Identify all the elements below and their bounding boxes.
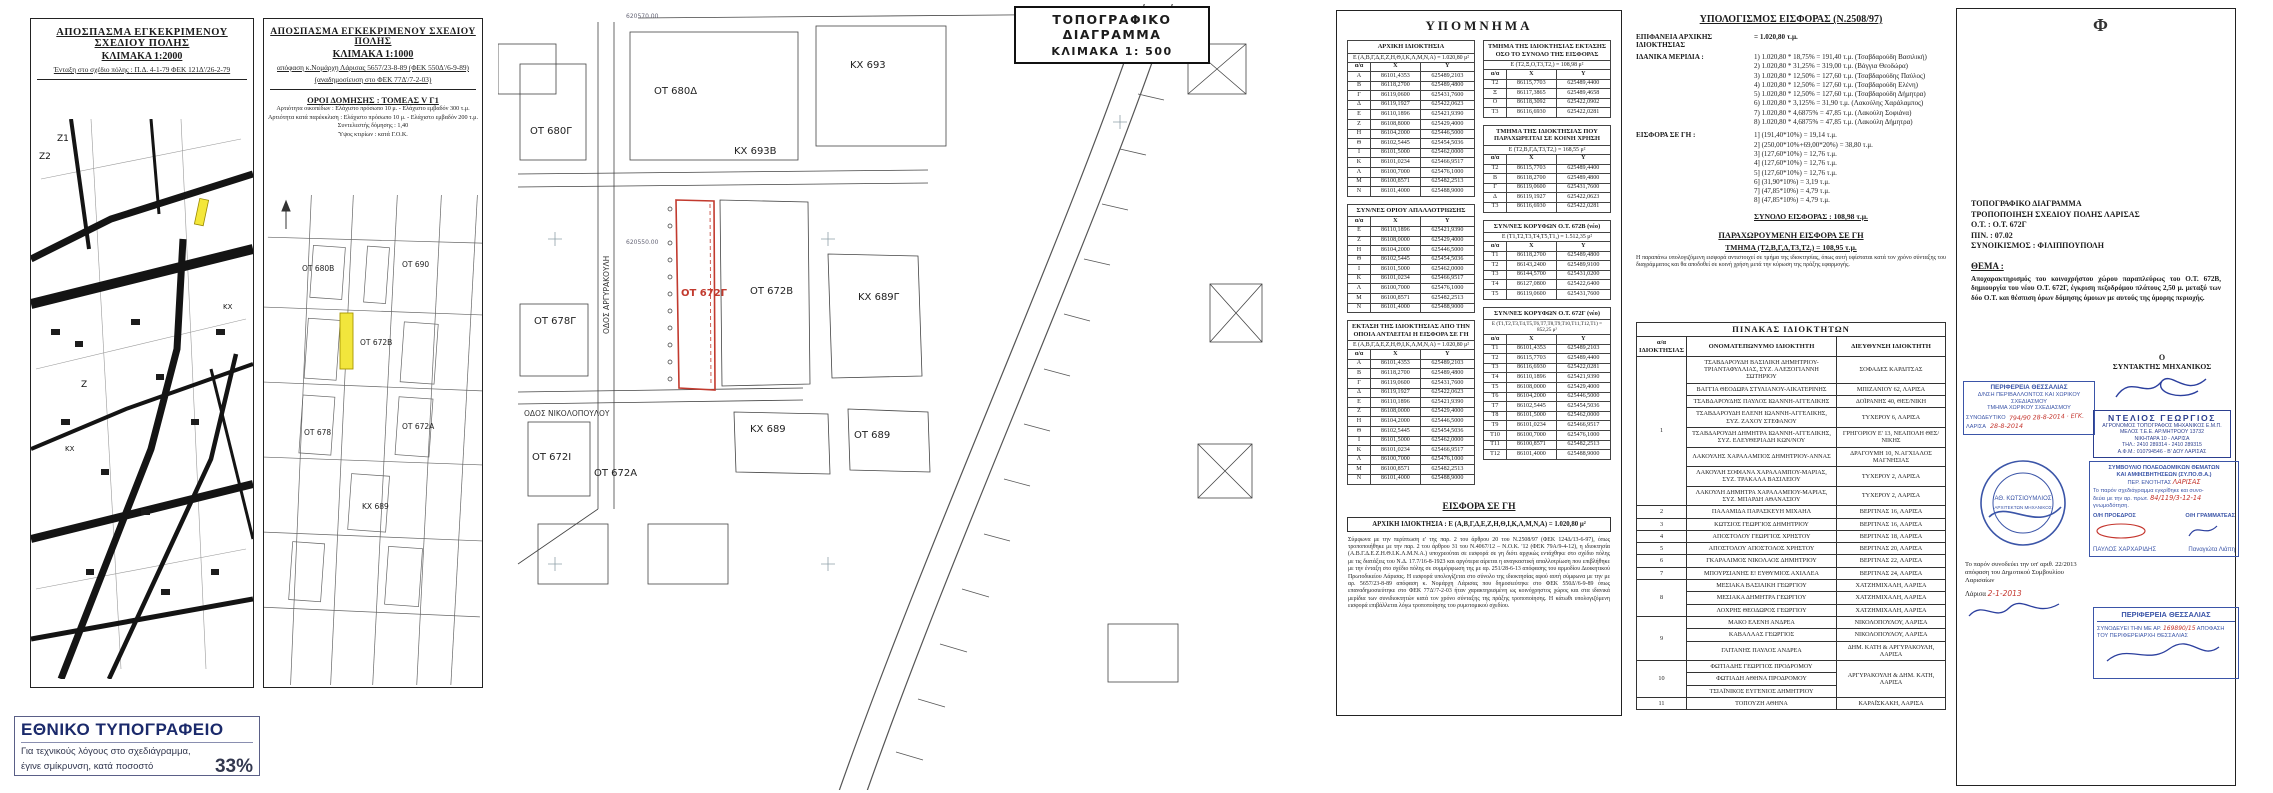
north-arrow-icon — [282, 201, 290, 229]
coord-cell: Θ — [1348, 255, 1371, 265]
coord-cell: 86110,1896 — [1507, 373, 1557, 383]
owner-address: ΣΟΦΑΔΕΣ ΚΑΡΔΙΤΣΑΣ — [1837, 356, 1946, 383]
coord-cell: Ν — [1348, 187, 1371, 197]
coord-cell: 86100,8571 — [1371, 465, 1421, 475]
coord-cell: 86101,4000 — [1371, 303, 1421, 313]
coord-cell: Κ — [1348, 274, 1371, 284]
coord-cell: 86102,5445 — [1371, 255, 1421, 265]
table-row: Κ86101,0234625466,9517 — [1348, 158, 1475, 168]
coord-cell: 86101,4000 — [1371, 474, 1421, 484]
coord-cell: 86116,6930 — [1507, 108, 1557, 118]
coord-cell: 625422,0623 — [1420, 388, 1474, 398]
col-header: Y — [1556, 154, 1610, 164]
table-row: Δ86119,1927625422,0623 — [1348, 100, 1475, 110]
building-terms-line: Συντελεστής δόμησης : 1,40 — [264, 122, 482, 131]
titleblock-line: ΤΡΟΠΟΠΟΙΗΣΗ ΣΧΕΔΙΟΥ ΠΟΛΗΣ ΛΑΡΙΣΑΣ — [1971, 210, 2201, 221]
coord-cell: 625429,4000 — [1420, 120, 1474, 130]
coord-cell: 86101,0234 — [1371, 274, 1421, 284]
highlighted-parcel-yellow — [194, 198, 208, 225]
coord-cell: 625462,0000 — [1556, 411, 1610, 421]
coord-cell: 86101,5000 — [1371, 148, 1421, 158]
coord-cell: Τ2 — [1484, 354, 1507, 364]
president-name: ΠΑΥΛΟΣ ΧΑΡΧΑΡΙΔΗΣ — [2093, 547, 2156, 553]
signature-squiggle — [1965, 598, 2065, 624]
table-row: Δ86119,1927625422,0623 — [1348, 388, 1475, 398]
coord-cell: 625454,5036 — [1420, 139, 1474, 149]
handwritten-date: 28-8-2014 — [1990, 422, 2023, 430]
coord-cell: 86101,4353 — [1371, 72, 1421, 82]
table-row: Τ286115,7703625489,4400 — [1484, 164, 1611, 174]
map-sketch-1000: ΟΤ 680Β ΟΤ 690 ΟΤ 672Β ΟΤ 678 ΟΤ 672Α ΚΧ… — [264, 195, 482, 685]
coord-cell: Τ1 — [1484, 251, 1507, 261]
table-contribution-extent: ΕΚΤΑΣΗ ΤΗΣ ΙΔΙΟΚΤΗΣΙΑΣ ΑΠΟ ΤΗΝ ΟΠΟΙΑ ΑΝΤ… — [1347, 320, 1475, 484]
panel-topographic-map: ΟΤ 680Δ ΚΧ 693 ΟΤ 680Γ ΚΧ 693Β ΟΤ 672Β Κ… — [498, 4, 1330, 790]
granted-contribution-title: ΠΑΡΑΧΩΡΟΥΜΕΝΗ ΕΙΣΦΟΡΑ ΣΕ ΓΗ — [1636, 231, 1946, 240]
stamp-line: ΤΟΥ ΠΕΡΙΦΕΡΕΙΑΡΧΗ ΘΕΣΣΑΛΙΑΣ — [2097, 633, 2235, 640]
table-row: Τ186118,2700625489,4800 — [1484, 251, 1611, 261]
owner-address: ΚΑΡΑΪΣΚΑΚΗ, ΛΑΡΙΣΑ — [1837, 698, 1946, 710]
coord-cell: Θ — [1348, 139, 1371, 149]
coord-cell: 625422,0623 — [1420, 100, 1474, 110]
coord-cell: Δ — [1348, 100, 1371, 110]
coord-cell: Τ10 — [1484, 431, 1507, 441]
table-row: Τ386144,5700625431,0200 — [1484, 270, 1611, 280]
table-row: Τ1286101,4000625488,9000 — [1484, 450, 1611, 460]
legend-left-column: ΑΡΧΙΚΗ ΙΔΙΟΚΤΗΣΙΑ Ε (Α,Β,Γ,Δ,Ε,Ζ,Η,Θ,Ι,Κ… — [1347, 40, 1475, 492]
extract-2000-subtitle: Ένταξη στο σχέδιο πόλης : Π.Δ. 4-1-79 ΦΕ… — [31, 65, 253, 74]
coord-cell: 625454,5036 — [1420, 255, 1474, 265]
coord-cell: Λ — [1348, 455, 1371, 465]
coord-cell: Μ — [1348, 294, 1371, 304]
map-title-box: ΤΟΠΟΓΡΑΦΙΚΟ ΔΙΑΓΡΑΜΜΑ ΚΛΙΜΑΚΑ 1: 500 — [1014, 6, 1210, 64]
land-contribution-list: 1] (191,40*10%) = 19,14 τ.μ.2] (250,00*1… — [1754, 131, 1946, 205]
handwritten-city: ΛΑΡΙΣΑΣ — [2173, 478, 2201, 486]
table-row: Μ86100,8571625482,2513 — [1348, 177, 1475, 187]
coord-cell: 625466,9517 — [1556, 421, 1610, 431]
coord-cell: Κ — [1348, 158, 1371, 168]
coord-cell: 86101,5000 — [1371, 436, 1421, 446]
land-contribution-label: ΕΙΣΦΟΡΑ ΣΕ ΓΗ : — [1636, 131, 1754, 205]
coord-cell: Τ2 — [1484, 164, 1507, 174]
owners-col-header: α/α ΙΔΙΟΚΤΗΣΙΑΣ — [1637, 337, 1687, 357]
table-block-672g-vertices: ΣΥΝ/ΝΕΣ ΚΟΡΥΦΩΝ Ο.Τ. 672Γ (νέο) Ε (Τ1,Τ2… — [1483, 307, 1611, 460]
table-common-use-part: ΤΜΗΜΑ ΤΗΣ ΙΔΙΟΚΤΗΣΙΑΣ ΠΟΥ ΠΑΡΑΧΩΡΕΙΤΑΙ Σ… — [1483, 125, 1611, 213]
table-row: Τ586119,0600625431,7600 — [1484, 290, 1611, 300]
table-row: Τ286115,7703625489,4400 — [1484, 79, 1611, 89]
coord-cell: 86101,5000 — [1507, 411, 1557, 421]
table-area: Ε (Τ2,Ξ,Ο,Τ3,Τ2,) = 108,98 μ² — [1483, 60, 1611, 69]
table-row: Τ886101,5000625462,0000 — [1484, 411, 1611, 421]
table-row: Τ386116,6930625422,0281 — [1484, 108, 1611, 118]
table-row: Κ86101,0234625466,9517 — [1348, 274, 1475, 284]
coord-cell: Τ5 — [1484, 290, 1507, 300]
owner-name: ΤΣΑΒΔΑΡΟΥΔΗ ΕΛΕΝΗ ΙΩΑΝΝΗ-ΑΓΓΕΛΙΚΗΣ, ΣΥΖ.… — [1687, 408, 1837, 428]
coord-cell: 625488,9000 — [1420, 303, 1474, 313]
coord-cell: 625446,5000 — [1420, 417, 1474, 427]
stamp-line: Α.Φ.Μ.: 010794546 - Β' ΔΟΥ ΛΑΡΙΣΑΣ — [2097, 449, 2227, 455]
kx-label: ΚΧ — [223, 303, 233, 311]
coord-cell: 625429,4000 — [1420, 407, 1474, 417]
building-terms-line: Ύψος κτιρίων : κατά Γ.Ο.Κ. — [264, 131, 482, 140]
block-label: ΟΤ 690 — [402, 260, 429, 269]
coord-cell: 86116,6930 — [1507, 363, 1557, 373]
owner-number: 10 — [1637, 661, 1687, 698]
coord-cell: Ζ — [1348, 236, 1371, 246]
coord-cell: 86100,8571 — [1507, 440, 1557, 450]
coord-cell: Μ — [1348, 177, 1371, 187]
tree-dots — [668, 207, 672, 381]
coord-cell: Τ4 — [1484, 280, 1507, 290]
table-row: Ζ86108,8000625429,4000 — [1348, 120, 1475, 130]
map-scale: ΚΛΙΜΑΚΑ 1: 500 — [1024, 45, 1200, 58]
titleblock-line: Ο.Τ. : Ο.Τ. 672Γ — [1971, 220, 2201, 231]
coord-cell: 625488,9000 — [1420, 474, 1474, 484]
coord-cell: Ζ — [1348, 120, 1371, 130]
list-line: 7) 1.020,80 * 4,6875% = 47,85 τ.μ. (Λακο… — [1754, 109, 1946, 118]
coord-cell: 86143,2400 — [1507, 261, 1557, 271]
handwritten-decision-number: 169890/15 — [2163, 625, 2196, 632]
owner-row: 5ΑΠΟΣΤΟΛΟΥ ΑΠΟΣΤΟΛΟΣ ΧΡΗΣΤΟΥΒΕΡΓΙΝΑΣ 20,… — [1637, 543, 1946, 555]
table-title: ΤΜΗΜΑ ΤΗΣ ΙΔΙΟΚΤΗΣΙΑΣ ΕΚΤΑΣΗΣ ΟΣΟ ΤΟ ΣΥΝ… — [1483, 40, 1611, 60]
owner-address: ΤΥΧΕΡΟΥ 2, ΛΑΡΙΣΑ — [1837, 467, 1946, 487]
coord-cell: Β — [1348, 369, 1371, 379]
stamp-line: ΛΑΡΙΣΑ — [1966, 424, 1986, 431]
stamp-line: ΝΤΕΛΙΟΣ ΓΕΩΡΓΙΟΣ — [2097, 413, 2227, 423]
coord-cell: Α — [1348, 359, 1371, 369]
owner-name: ΤΣΑΒΔΑΡΟΥΔΗΣ ΠΑΥΛΟΣ ΙΩΑΝΝΗ-ΑΓΓΕΛΙΚΗΣ — [1687, 396, 1837, 408]
coord-cell: 86127,0800 — [1507, 280, 1557, 290]
coord-cell: 625489,4400 — [1556, 354, 1610, 364]
circular-official-stamp: ΑΘ. ΚΩΤΣΙΟΥΜΛΙΟΣ ΑΡΧΙΤΕΚΤΩΝ ΜΗΧΑΝΙΚΟΣ — [1977, 457, 2069, 549]
coord-cell: Τ4 — [1484, 373, 1507, 383]
table-row: Η86104,2000625446,5000 — [1348, 246, 1475, 256]
right-blocks — [498, 44, 1262, 682]
owner-name: ΒΑΓΓΙΑ ΘΕΟΔΩΡΑ ΣΤΥΛΙΑΝΟΥ-ΑΙΚΑΤΕΡΙΝΗΣ — [1687, 383, 1837, 395]
owner-name: ΓΑΙΤΑΝΗΣ ΠΑΥΛΟΣ ΑΝΔΡΕΑ — [1687, 641, 1837, 661]
coord-cell: 625431,7600 — [1420, 379, 1474, 389]
table-row: Τ386116,6930625422,0281 — [1484, 363, 1611, 373]
table-row: Δ86119,1927625422,0623 — [1484, 193, 1611, 203]
list-line: 4] (127,60*10%) = 12,76 τ.μ. — [1754, 159, 1946, 168]
coord-cell: 86108,8000 — [1371, 120, 1421, 130]
coord-cell: 86100,8571 — [1371, 294, 1421, 304]
stamp-line: γνωμοδότηση. — [2093, 503, 2235, 510]
coord-cell: 625466,9517 — [1420, 274, 1474, 284]
coord-cell: 625431,7600 — [1556, 183, 1610, 193]
owner-address: ΒΕΡΓΙΝΑΣ 24, ΛΑΡΙΣΑ — [1837, 567, 1946, 579]
coord-cell: 86118,2700 — [1371, 369, 1421, 379]
coord-cell: 86119,1927 — [1507, 193, 1557, 203]
owner-row: 11ΤΟΠΟΥΖΗ ΑΘΗΝΑΚΑΡΑΪΣΚΑΚΗ, ΛΑΡΙΣΑ — [1637, 698, 1946, 710]
kx-label: ΚΧ — [65, 445, 75, 453]
owner-name: ΜΠΟΥΡΣΙΑΝΗΣ Ε! ΕΥΘΥΜΙΟΣ ΑΧΙΛΛΕΑ — [1687, 567, 1837, 579]
total-contribution: ΣΥΝΟΛΟ ΕΙΣΦΟΡΑΣ : 108,98 τ.μ. — [1754, 212, 1946, 221]
table-row: Θ86102,5445625454,5036 — [1348, 255, 1475, 265]
coord-cell: Λ — [1348, 284, 1371, 294]
coord-cell: 86119,1927 — [1371, 100, 1421, 110]
coord-cell: Τ12 — [1484, 450, 1507, 460]
coord-cell: 86101,4000 — [1507, 450, 1557, 460]
region-planning-stamp: ΠΕΡΙΦΕΡΕΙΑ ΘΕΣΣΑΛΙΑΣ Δ/ΝΣΗ ΠΕΡΙΒΑΛΛΟΝΤΟΣ… — [1963, 381, 2095, 435]
table-row: Γ86119,0600625431,7600 — [1348, 91, 1475, 101]
owner-name: ΛΑΚΟΥΛΗΣ ΧΑΡΑΛΑΜΠΟΣ ΔΗΜΗΤΡΙΟΥ-ΑΝΝΑΣ — [1687, 447, 1837, 467]
table-contribution-part: ΤΜΗΜΑ ΤΗΣ ΙΔΙΟΚΤΗΣΙΑΣ ΕΚΤΑΣΗΣ ΟΣΟ ΤΟ ΣΥΝ… — [1483, 40, 1611, 118]
owner-name: ΛΑΚΟΥΛΗ ΔΗΜΗΤΡΑ ΧΑΡΑΛΑΜΠΟΥ-ΜΑΡΙΑΣ, ΣΥΖ. … — [1687, 486, 1837, 506]
coord-cell: 86100,8571 — [1371, 177, 1421, 187]
coord-cell: 625422,0281 — [1556, 108, 1610, 118]
table-title: ΕΚΤΑΣΗ ΤΗΣ ΙΔΙΟΚΤΗΣΙΑΣ ΑΠΟ ΤΗΝ ΟΠΟΙΑ ΑΝΤ… — [1347, 320, 1475, 340]
block-label: ΟΤ 680Δ — [654, 86, 697, 97]
legend-title: ΥΠΟΜΝΗΜΑ — [1343, 18, 1615, 34]
owner-row: 7ΜΠΟΥΡΣΙΑΝΗΣ Ε! ΕΥΘΥΜΙΟΣ ΑΧΙΛΛΕΑΒΕΡΓΙΝΑΣ… — [1637, 567, 1946, 579]
coord-cell: Η — [1348, 246, 1371, 256]
table-expropriation-boundary: ΣΥΝ/ΝΕΣ ΟΡΙΟΥ ΑΠΑΛΛΟΤΡΙΩΣΗΣ α/α X Y Ε861… — [1347, 204, 1475, 313]
owner-number: 3 — [1637, 518, 1687, 530]
table-row: Τ686104,2000625446,5000 — [1484, 392, 1611, 402]
panel-calculations: ΥΠΟΛΟΓΙΣΜΟΣ ΕΙΣΦΟΡΑΣ (Ν.2508/97) ΕΠΙΦΑΝΕ… — [1632, 8, 1950, 786]
granted-contribution-note: Η παραπάνω υπολογιζόμενη εισφορά αντιστο… — [1636, 255, 1946, 270]
surface-row: ΕΠΙΦΑΝΕΙΑ ΑΡΧΙΚΗΣ ΙΔΙΟΚΤΗΣΙΑΣ = 1.020,80… — [1636, 33, 1946, 49]
table-row: Κ86101,0234625466,9517 — [1348, 446, 1475, 456]
owner-address: ΒΕΡΓΙΝΑΣ 20, ΛΑΡΙΣΑ — [1837, 543, 1946, 555]
extract-2000-header: ΑΠΟΣΠΑΣΜΑ ΕΓΚΕΚΡΙΜΕΝΟΥ ΣΧΕΔΙΟΥ ΠΟΛΗΣ ΚΛΙ… — [31, 19, 253, 74]
table-area: Ε (Α,Β,Γ,Δ,Ε,Ζ,Η,Θ,Ι,Κ,Λ,Μ,Ν,Α) = 1.020,… — [1347, 340, 1475, 349]
coord-cell: 86118,2700 — [1371, 81, 1421, 91]
col-header: α/α — [1484, 154, 1507, 164]
coord-cell: 86104,2000 — [1371, 129, 1421, 139]
owner-number: 9 — [1637, 616, 1687, 660]
coord-cell: 625488,9000 — [1556, 450, 1610, 460]
owner-address: ΤΥΧΕΡΟΥ 6, ΛΑΡΙΣΑ — [1837, 408, 1946, 428]
col-header: X — [1371, 350, 1421, 360]
owner-address: ΧΑΤΖΗΜΙΧΑΛΗ, ΛΑΡΙΣΑ — [1837, 604, 1946, 616]
owner-name: ΑΠΟΣΤΟΛΟΥ ΓΕΩΡΓΙΟΣ ΧΡΗΣΤΟΥ — [1687, 530, 1837, 542]
table-initial-property: ΑΡΧΙΚΗ ΙΔΙΟΚΤΗΣΙΑ Ε (Α,Β,Γ,Δ,Ε,Ζ,Η,Θ,Ι,Κ… — [1347, 40, 1475, 197]
coord-cell: 625489,2103 — [1556, 344, 1610, 354]
owner-name: ΓΚΑΡΑΛΙΜΟΣ ΝΙΚΟΛΑΟΣ ΔΗΜΗΤΡΙΟΥ — [1687, 555, 1837, 567]
table-area: Ε (Τ1,Τ2,Τ3,Τ4,Τ5,Τ1,) = 1.512,35 μ² — [1483, 232, 1611, 241]
coord-cell: 86101,5000 — [1371, 265, 1421, 275]
owner-number: 6 — [1637, 555, 1687, 567]
titleblock-line: ΣΥΝΟΙΚΙΣΜΟΣ : ΦΙΛΙΠΠΟΥΠΟΛΗ — [1971, 241, 2201, 252]
coord-cell: 625489,2103 — [1420, 72, 1474, 82]
col-header: Y — [1420, 62, 1474, 72]
list-line: 7] (47,85*10%) = 4,79 τ.μ. — [1754, 187, 1946, 196]
owner-row: 9ΜΑΚΟ ΕΛΕΝΗ ΑΝΔΡΕΑΝΙΚΟΛΟΠΟΥΛΟΥ, ΛΑΡΙΣΑ — [1637, 616, 1946, 628]
col-header: Y — [1420, 217, 1474, 227]
table-row: Α86101,4353625489,2103 — [1348, 72, 1475, 82]
building-terms: ΟΡΟΙ ΔΟΜΗΣΗΣ : ΤΟΜΕΑΣ V Γ1 Αρτιότητα οικ… — [264, 95, 482, 139]
zone-label: Ζ — [81, 380, 87, 390]
legend-right-column: ΤΜΗΜΑ ΤΗΣ ΙΔΙΟΚΤΗΣΙΑΣ ΕΚΤΑΣΗΣ ΟΣΟ ΤΟ ΣΥΝ… — [1483, 40, 1611, 492]
coord-cell: 86101,4353 — [1371, 359, 1421, 369]
coord-cell: 625488,9000 — [1420, 187, 1474, 197]
coord-cell: 86100,7000 — [1507, 431, 1557, 441]
municipal-council-note: Το παρόν συνοδεύει την υπ' αριθ. 22/2013… — [1965, 561, 2093, 629]
titleblock-line: ΤΟΠΟΓΡΑΦΙΚΟ ΔΙΑΓΡΑΜΜΑ — [1971, 199, 2201, 210]
stamp-line: ΣΥΝΟΔΕΥΕΙ ΤΗΝ ΜΕ ΑΡ. — [2097, 626, 2161, 632]
secretary-name: Παναγιώτα Λιάπη — [2188, 547, 2235, 553]
owner-address: ΝΙΚΟΛΟΠΟΥΛΟΥ, ΛΑΡΙΣΑ — [1837, 629, 1946, 641]
coord-cell: Τ8 — [1484, 411, 1507, 421]
stamp-line: ΤΜΗΜΑ ΧΩΡΙΚΟΥ ΣΧΕΔΙΑΣΜΟΥ — [1966, 405, 2092, 412]
coord-cell: 625489,4400 — [1556, 164, 1610, 174]
council-note-text: Το παρόν συνοδεύει την υπ' αριθ. 22/2013… — [1965, 561, 2093, 585]
coord-cell: Δ — [1348, 388, 1371, 398]
coord-cell: Β — [1484, 174, 1507, 184]
coord-cell: 625446,5000 — [1420, 129, 1474, 139]
coord-cell: 86110,1896 — [1371, 398, 1421, 408]
coord-cell: 86102,5445 — [1371, 427, 1421, 437]
grid-coordinate: 620570.00 — [626, 13, 659, 20]
coord-cell: 86119,0600 — [1507, 290, 1557, 300]
coord-cell: 625422,0623 — [1556, 193, 1610, 203]
owner-address: ΒΕΡΓΙΝΑΣ 18, ΛΑΡΙΣΑ — [1837, 530, 1946, 542]
table-row: Τ486110,1896625421,9390 — [1484, 373, 1611, 383]
table-row: Γ86119,0600625431,7600 — [1348, 379, 1475, 389]
stamp-line: ΑΠΟΦΑΣΗ — [2197, 626, 2225, 632]
handwritten-opinion-number: 84/119/3-12-14 — [2150, 494, 2201, 502]
owner-row: 10ΦΩΤΙΑΔΗΣ ΓΕΩΡΓΙΟΣ ΠΡΟΔΡΟΜΟΥΑΡΓΥΡΑΚΟΥΛΗ… — [1637, 661, 1946, 673]
coord-cell: 625466,9517 — [1420, 446, 1474, 456]
coord-cell: 86102,5445 — [1371, 139, 1421, 149]
owners-table: ΠΙΝΑΚΑΣ ΙΔΙΟΚΤΗΤΩΝ α/α ΙΔΙΟΚΤΗΣΙΑΣ ΟΝΟΜΑ… — [1636, 322, 1946, 710]
engineer-role: ΣΥΝΤΑΚΤΗΣ ΜΗΧΑΝΙΚΟΣ — [2093, 362, 2231, 371]
coord-cell: 86100,7000 — [1371, 455, 1421, 465]
coord-cell: 625489,4800 — [1556, 174, 1610, 184]
coord-cell: Γ — [1348, 91, 1371, 101]
coord-cell: 625421,9390 — [1556, 373, 1610, 383]
coord-cell: 86101,4000 — [1371, 187, 1421, 197]
owner-name: ΦΩΤΙΑΔΗ ΑΘΗΝΑ ΠΡΟΔΡΟΜΟΥ — [1687, 673, 1837, 685]
col-header: Y — [1556, 335, 1610, 345]
list-line: 4) 1.020,80 * 12,50% = 127,60 τ.μ. (Τσαβ… — [1754, 81, 1946, 90]
coord-cell: Δ — [1484, 193, 1507, 203]
owner-address: ΔΟΪΡΑΝΗΣ 40, ΘΕΣ/ΝΙΚΗ — [1837, 396, 1946, 408]
owner-name: ΚΩΤΣΙΟΣ ΓΕΩΡΓΙΟΣ ΔΗΜΗΤΡΙΟΥ — [1687, 518, 1837, 530]
owner-address: ΒΕΡΓΙΝΑΣ 16, ΛΑΡΙΣΑ — [1837, 506, 1946, 518]
coord-cell: 625466,9517 — [1420, 158, 1474, 168]
col-header: α/α — [1484, 70, 1507, 80]
street-label: ΟΔΟΣ ΝΙΚΟΛΟΠΟΥΛΟΥ — [524, 409, 610, 418]
coord-cell: 86118,2700 — [1507, 174, 1557, 184]
table-row: Τ286115,7703625489,4400 — [1484, 354, 1611, 364]
coord-cell: 625482,2513 — [1420, 294, 1474, 304]
coord-cell: 625454,5036 — [1420, 427, 1474, 437]
coord-cell: 86115,7703 — [1507, 79, 1557, 89]
stamp-line: ΣΥΝΟΔΕΥΤΙΚΟ — [1966, 415, 2006, 422]
block-label: ΚΧ 689Γ — [858, 292, 900, 303]
coord-cell: Τ2 — [1484, 79, 1507, 89]
owner-row: 4ΑΠΟΣΤΟΛΟΥ ΓΕΩΡΓΙΟΣ ΧΡΗΣΤΟΥΒΕΡΓΙΝΑΣ 18, … — [1637, 530, 1946, 542]
scanned-topographic-sheet: ΑΠΟΣΠΑΣΜΑ ΕΓΚΕΚΡΙΜΕΝΟΥ ΣΧΕΔΙΟΥ ΠΟΛΗΣ ΚΛΙ… — [0, 0, 2273, 793]
land-contribution-heading: ΕΙΣΦΟΡΑ ΣΕ ΓΗ — [1343, 502, 1615, 512]
col-header: α/α — [1348, 217, 1371, 227]
coord-cell: 86119,0600 — [1507, 183, 1557, 193]
engineer-article: Ο — [2093, 353, 2231, 362]
col-header: X — [1507, 335, 1557, 345]
coord-cell: 625476,1000 — [1420, 284, 1474, 294]
signature-squiggle — [2097, 639, 2227, 669]
col-header: α/α — [1484, 335, 1507, 345]
coord-cell: 625421,9390 — [1420, 398, 1474, 408]
stamp-line: ΠΕΡ. ΕΝΟΤΗΤΑΣ — [2127, 480, 2171, 486]
coord-cell: 86116,6930 — [1507, 202, 1557, 212]
owner-row: 3ΚΩΤΣΙΟΣ ΓΕΩΡΓΙΟΣ ΔΗΜΗΤΡΙΟΥΒΕΡΓΙΝΑΣ 16, … — [1637, 518, 1946, 530]
table-area: Ε (Τ1,Τ2,Τ3,Τ4,Τ5,Τ6,Τ7,Τ8,Τ9,Τ10,Τ11,Τ1… — [1483, 319, 1611, 334]
handwritten-date: 2-1-2013 — [1988, 589, 2022, 598]
owner-number: 8 — [1637, 580, 1687, 617]
coord-cell: 625462,0000 — [1420, 265, 1474, 275]
titleblock-line: ΠΙΝ. : 07.02 — [1971, 231, 2201, 242]
railway-band — [838, 4, 1179, 790]
owner-address: ΒΕΡΓΙΝΑΣ 16, ΛΑΡΙΣΑ — [1837, 518, 1946, 530]
coord-cell: Τ3 — [1484, 363, 1507, 373]
table-area: Ε (Τ2,Β,Γ,Δ,Τ3,Τ2,) = 168,55 μ² — [1483, 145, 1611, 154]
coord-cell: Κ — [1348, 446, 1371, 456]
map-title: ΤΟΠΟΓΡΑΦΙΚΟ ΔΙΑΓΡΑΜΜΑ — [1024, 12, 1200, 42]
table-row: Θ86102,5445625454,5036 — [1348, 139, 1475, 149]
ideal-shares-label: ΙΔΑΝΙΚΑ ΜΕΡΙΔΙΑ : — [1636, 53, 1754, 127]
coord-cell: 86119,0600 — [1371, 379, 1421, 389]
owner-number: 11 — [1637, 698, 1687, 710]
coord-cell: Τ3 — [1484, 270, 1507, 280]
extract-1000-sub2: (αναδημοσίευση στο ΦΕΚ 77Δ'/7-2-03) — [264, 75, 482, 84]
table-row: Ι86101,5000625462,0000 — [1348, 265, 1475, 275]
table-title: ΤΜΗΜΑ ΤΗΣ ΙΔΙΟΚΤΗΣΙΑΣ ΠΟΥ ΠΑΡΑΧΩΡΕΙΤΑΙ Σ… — [1483, 125, 1611, 145]
owner-address: ΔΗΜ. ΚΑΤΗ & ΑΡΓΥΡΑΚΟΥΛΗ, ΛΑΡΙΣΑ — [1837, 641, 1946, 661]
table-row: Λ86100,7000625476,1000 — [1348, 455, 1475, 465]
coord-cell: 625431,7600 — [1556, 290, 1610, 300]
block-label: ΟΤ 680Β — [302, 264, 334, 273]
owner-name: ΜΕΣΙΑΚΑ ΔΗΜΗΤΡΑ ΓΕΩΡΓΙΟΥ — [1687, 592, 1837, 604]
list-line: 2] (250,00*10%+69,00*20%) = 38,80 τ.μ. — [1754, 141, 1946, 150]
block-label: ΟΤ 672Α — [594, 468, 637, 479]
table-title: ΣΥΝ/ΝΕΣ ΚΟΡΥΦΩΝ Ο.Τ. 672Β (νέο) — [1483, 220, 1611, 233]
table-row: Μ86100,8571625482,2513 — [1348, 294, 1475, 304]
title-block: ΤΟΠΟΓΡΑΦΙΚΟ ΔΙΑΓΡΑΜΜΑ ΤΡΟΠΟΠΟΙΗΣΗ ΣΧΕΔΙΟ… — [1971, 199, 2201, 252]
block-label: ΚΧ 693 — [850, 60, 886, 71]
coord-cell: 86101,0234 — [1371, 446, 1421, 456]
zone-label: Ζ1 — [57, 134, 69, 144]
coord-cell: 86108,0000 — [1371, 236, 1421, 246]
list-line: 3) 1.020,80 * 12,50% = 127,60 τ.μ. (Τσαβ… — [1754, 72, 1946, 81]
coord-cell: Τ11 — [1484, 440, 1507, 450]
engineer-stamp-box: ΝΤΕΛΙΟΣ ΓΕΩΡΓΙΟΣ ΑΓΡΟΝΟΜΟΣ ΤΟΠΟΓΡΑΦΟΣ ΜΗ… — [2093, 410, 2231, 458]
coord-cell: 625421,9390 — [1420, 226, 1474, 236]
coord-cell: 625489,2103 — [1420, 359, 1474, 369]
owner-name: ΛΟΧΡΗΣ ΘΕΟΔΩΡΟΣ ΓΕΩΡΓΙΟΥ — [1687, 604, 1837, 616]
sypotha-stamp: ΣΥΜΒΟΥΛΙΟ ΠΟΛΕΟΔΟΜΙΚΩΝ ΘΕΜΑΤΩΝ ΚΑΙ ΑΜΦΙΣ… — [2089, 461, 2239, 557]
coord-cell: Τ5 — [1484, 383, 1507, 393]
coord-cell: Τ3 — [1484, 202, 1507, 212]
table-row: Η86104,2000625446,5000 — [1348, 129, 1475, 139]
stamp-holder-name: ΑΘ. ΚΩΤΣΙΟΥΜΛΙΟΣ — [1995, 496, 2052, 502]
owner-row: 1ΤΣΑΒΔΑΡΟΥΔΗ ΒΑΣΙΛΙΚΗ ΔΗΜΗΤΡΙΟΥ-ΤΡΙΑΝΤΑΦ… — [1637, 356, 1946, 383]
highlighted-parcel-yellow — [340, 313, 353, 369]
table-title: ΣΥΝ/ΝΕΣ ΚΟΡΥΦΩΝ Ο.Τ. 672Γ (νέο) — [1483, 307, 1611, 320]
coord-cell: Λ — [1348, 168, 1371, 178]
table-row: Τ186101,4353625489,2103 — [1484, 344, 1611, 354]
coord-cell: Τ2 — [1484, 261, 1507, 271]
stamp-line: δεύει με την αρ. πρωτ. — [2093, 496, 2149, 502]
coord-cell: 86119,0600 — [1371, 91, 1421, 101]
owner-address: ΑΡΓΥΡΑΚΟΥΛΗ & ΔΗΜ. ΚΑΤΗ, ΛΑΡΙΣΑ — [1837, 661, 1946, 698]
block-label: ΟΤ 680Γ — [530, 126, 572, 137]
table-area: Ε (Α,Β,Γ,Δ,Ε,Ζ,Η,Θ,Ι,Κ,Λ,Μ,Ν,Α) = 1.020,… — [1347, 53, 1475, 62]
president-label: Ο/Η ΠΡΟΕΔΡΟΣ — [2093, 513, 2136, 520]
block-label: ΟΤ 672Ι — [532, 452, 571, 463]
